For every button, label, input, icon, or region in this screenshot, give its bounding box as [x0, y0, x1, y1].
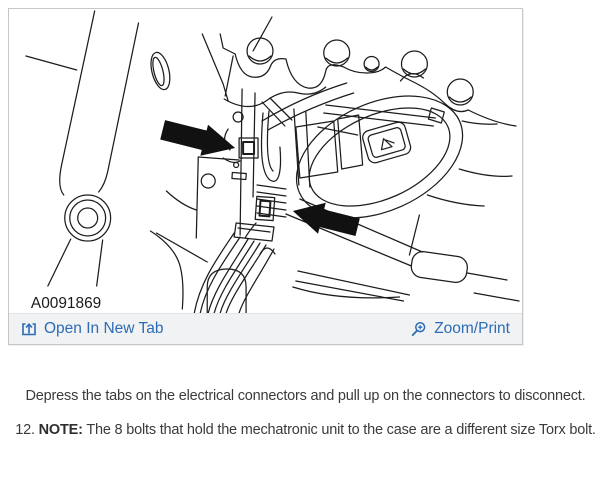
zoom-print-label: Zoom/Print [434, 320, 510, 338]
figure-id-label: A0091869 [31, 295, 101, 312]
open-in-new-tab-label: Open In New Tab [44, 320, 163, 338]
figure-image: A0091869 [9, 9, 522, 313]
note-label: NOTE: [39, 422, 83, 438]
figure-toolbar: Open In New Tab Zoom/Print [9, 313, 522, 344]
case-top-edge [202, 17, 516, 206]
instruction-text: Depress the tabs on the electrical conne… [0, 388, 611, 404]
mechatronic-internals [294, 105, 444, 187]
figure-card: A0091869 Open In New Tab Zoom/Print [8, 8, 523, 345]
note-text: The 8 bolts that hold the mechatronic un… [86, 422, 595, 438]
connector-body-line [238, 228, 270, 232]
mechatronic-connectors-diagram: A0091869 [9, 9, 522, 313]
step-12-note: 12. NOTE: The 8 bolts that hold the mech… [0, 422, 611, 438]
case-bottom-contours [150, 231, 399, 313]
open-in-new-tab-button[interactable]: Open In New Tab [21, 320, 163, 338]
bolt-holes [247, 38, 473, 105]
label-plate [361, 121, 412, 165]
case-arm [26, 11, 139, 286]
oring-hole [148, 51, 174, 92]
zoom-print-button[interactable]: Zoom/Print [410, 320, 510, 338]
open-in-new-tab-icon [21, 321, 37, 337]
zoom-print-icon [410, 321, 427, 338]
step-number: 12. [15, 422, 35, 438]
connector-pointer-arrow-upper [159, 114, 239, 163]
connector-pointer-arrow-lower [289, 195, 361, 242]
